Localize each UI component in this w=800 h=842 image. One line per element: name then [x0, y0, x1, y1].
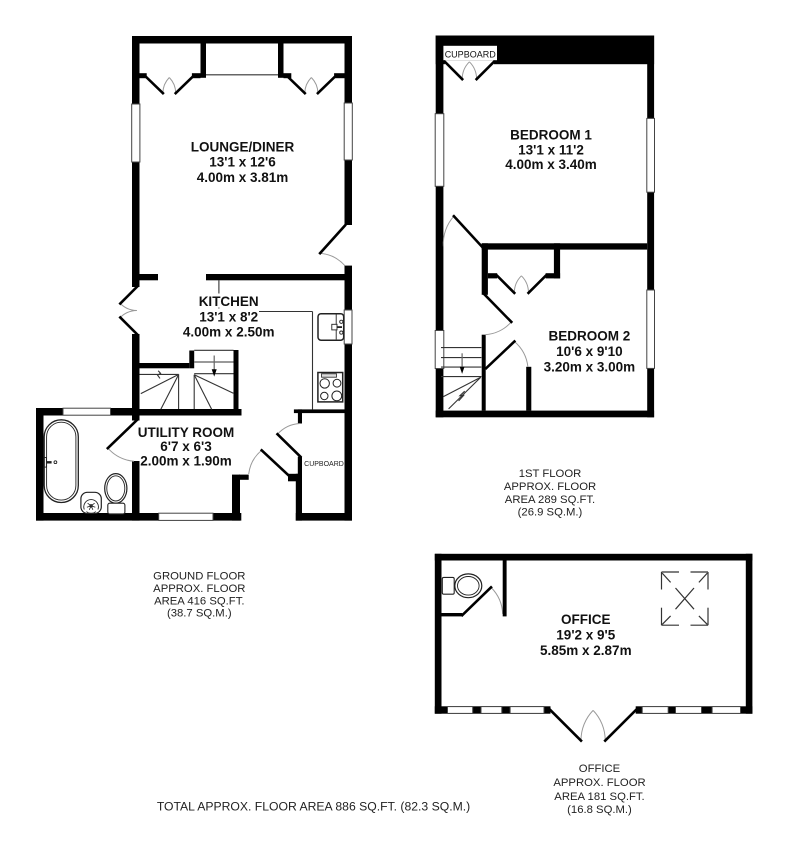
svg-text:APPROX. FLOOR: APPROX. FLOOR — [504, 481, 596, 493]
svg-text:13'1 x 8'2: 13'1 x 8'2 — [199, 309, 258, 324]
svg-text:GROUND FLOOR: GROUND FLOOR — [153, 571, 245, 583]
svg-text:4.00m x 3.81m: 4.00m x 3.81m — [197, 170, 289, 185]
svg-text:APPROX. FLOOR: APPROX. FLOOR — [153, 583, 245, 595]
svg-text:BEDROOM 1: BEDROOM 1 — [510, 128, 592, 143]
svg-text:13'1 x 12'6: 13'1 x 12'6 — [209, 155, 276, 170]
svg-text:CUPBOARD: CUPBOARD — [445, 50, 497, 60]
svg-text:13'1 x 11'2: 13'1 x 11'2 — [518, 142, 584, 157]
svg-text:OFFICE: OFFICE — [561, 612, 611, 627]
svg-text:CUPBOARD: CUPBOARD — [304, 461, 344, 468]
svg-text:OFFICE: OFFICE — [579, 763, 621, 775]
svg-text:KITCHEN: KITCHEN — [199, 294, 259, 309]
svg-text:(16.8 SQ.M.): (16.8 SQ.M.) — [567, 804, 632, 816]
svg-text:2.00m x 1.90m: 2.00m x 1.90m — [140, 453, 232, 468]
svg-text:19'2 x 9'5: 19'2 x 9'5 — [556, 628, 615, 643]
svg-text:AREA 416 SQ.FT.: AREA 416 SQ.FT. — [154, 595, 244, 607]
svg-text:BEDROOM 2: BEDROOM 2 — [549, 329, 631, 344]
svg-text:5.85m x 2.87m: 5.85m x 2.87m — [540, 643, 632, 658]
svg-text:4.00m x 2.50m: 4.00m x 2.50m — [183, 324, 275, 339]
svg-text:TOTAL APPROX. FLOOR AREA 886 S: TOTAL APPROX. FLOOR AREA 886 SQ.FT. (82.… — [157, 800, 470, 814]
svg-text:(38.7 SQ.M.): (38.7 SQ.M.) — [167, 608, 232, 620]
svg-text:LOUNGE/DINER: LOUNGE/DINER — [191, 139, 295, 154]
svg-text:AREA 181 SQ.FT.: AREA 181 SQ.FT. — [554, 791, 644, 803]
svg-text:1ST FLOOR: 1ST FLOOR — [519, 468, 582, 480]
svg-text:4.00m x 3.40m: 4.00m x 3.40m — [505, 157, 597, 172]
svg-text:10'6 x 9'10: 10'6 x 9'10 — [556, 344, 622, 359]
svg-text:(26.9 SQ.M.): (26.9 SQ.M.) — [518, 507, 583, 519]
svg-text:UTILITY ROOM: UTILITY ROOM — [138, 425, 235, 440]
svg-text:6'7 x 6'3: 6'7 x 6'3 — [160, 439, 212, 454]
svg-text:APPROX. FLOOR: APPROX. FLOOR — [553, 777, 645, 789]
svg-text:AREA 289 SQ.FT.: AREA 289 SQ.FT. — [505, 494, 595, 506]
svg-text:3.20m x 3.00m: 3.20m x 3.00m — [544, 359, 636, 374]
